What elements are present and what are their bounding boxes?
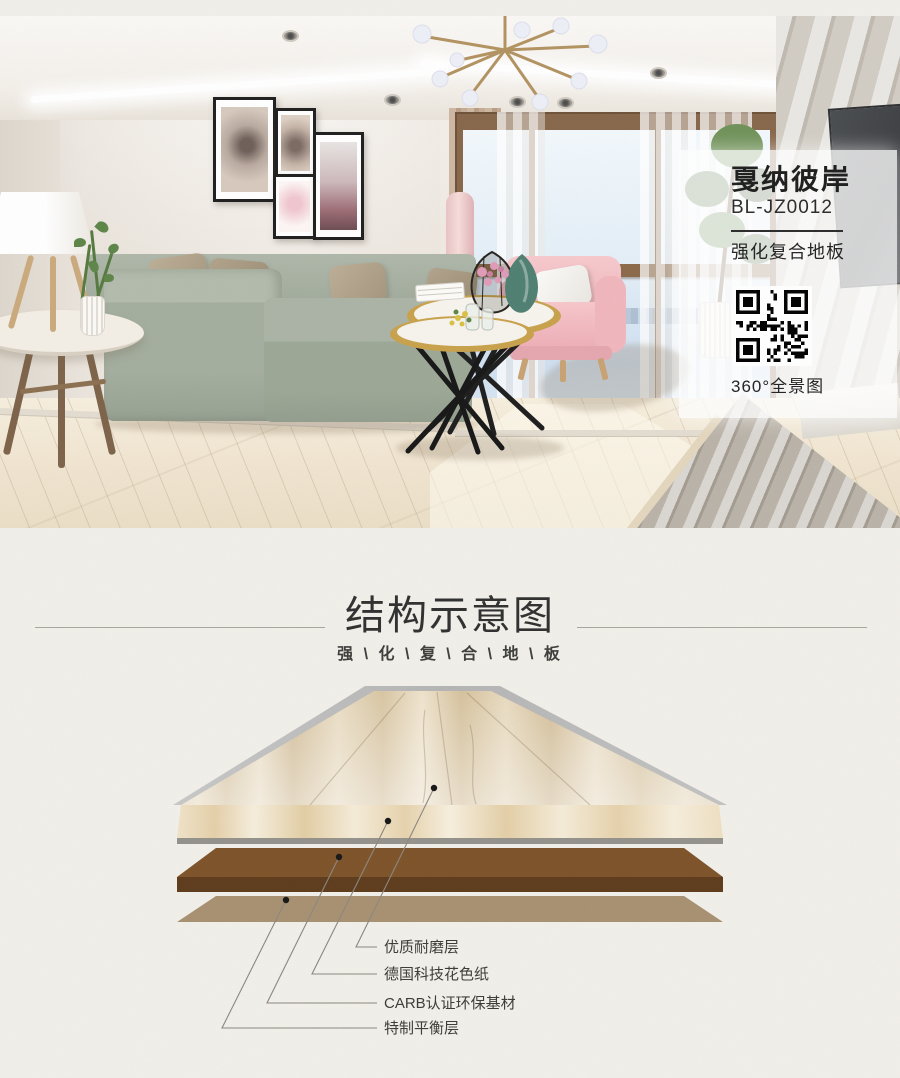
- layer-substrate-front: [177, 877, 723, 892]
- chandelier: [400, 16, 615, 116]
- picture-frame-2: [275, 108, 316, 178]
- qr-caption: 360°全景图: [731, 372, 824, 397]
- title-rule-right: [577, 627, 867, 628]
- layer-decor-band: [177, 805, 723, 838]
- frame-art: [279, 181, 309, 232]
- layer-label-wear: 优质耐磨层: [384, 939, 459, 956]
- downlight-icon: [282, 30, 299, 42]
- section-subtitle: 强 \ 化 \ 复 \ 合 \ 地 \ 板: [0, 640, 900, 664]
- product-model: BL-JZ0012: [731, 197, 833, 219]
- section-title: 结构示意图: [0, 583, 900, 641]
- coffee-tables: [370, 246, 600, 476]
- frame-art: [320, 142, 357, 230]
- layer-substrate-top: [177, 848, 723, 877]
- frame-art: [281, 115, 310, 170]
- layer-label-substrate: CARB认证环保基材: [384, 995, 516, 1012]
- divider-line: [731, 230, 843, 232]
- frame-art: [221, 107, 268, 192]
- downlight-icon: [650, 67, 667, 79]
- title-rule-left: [35, 627, 325, 628]
- picture-frame-1: [213, 97, 276, 202]
- product-category: 强化复合地板: [731, 238, 845, 264]
- lamp-leg: [50, 256, 56, 332]
- side-table-leg: [58, 346, 65, 468]
- layer-label-balance: 特制平衡层: [384, 1020, 459, 1037]
- room-photo: 戛纳彼岸 BL-JZ0012 强化复合地板 360°全景图: [0, 16, 900, 528]
- product-page: 戛纳彼岸 BL-JZ0012 强化复合地板 360°全景图 结构示意图 强 \ …: [0, 0, 900, 1078]
- qr-code: [732, 286, 812, 366]
- layer-balance: [177, 896, 723, 922]
- picture-frame-3: [273, 174, 316, 239]
- layer-label-decor: 德国科技花色纸: [384, 965, 489, 983]
- structure-diagram: 优质耐磨层 德国科技花色纸 CARB认证环保基材 特制平衡层: [0, 670, 900, 1078]
- table-vase: [80, 296, 105, 336]
- layer-underlay-strip: [177, 838, 723, 844]
- downlight-icon: [384, 94, 401, 106]
- product-name: 戛纳彼岸: [731, 158, 851, 198]
- product-info-panel: 戛纳彼岸 BL-JZ0012 强化复合地板 360°全景图: [679, 150, 897, 418]
- picture-frame-4: [313, 132, 364, 240]
